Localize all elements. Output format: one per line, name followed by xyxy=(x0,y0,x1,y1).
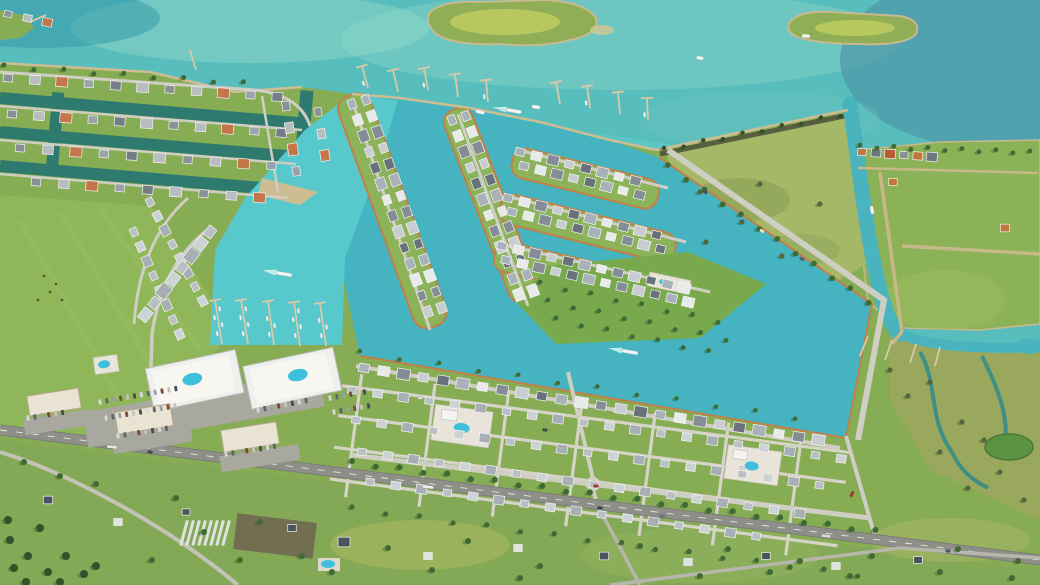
house xyxy=(660,459,669,467)
house xyxy=(738,470,747,478)
tree-icon xyxy=(716,320,721,325)
house xyxy=(418,372,429,382)
rural-pool xyxy=(321,560,335,568)
tree-icon xyxy=(181,75,186,80)
house xyxy=(506,438,515,446)
house xyxy=(221,124,234,135)
house xyxy=(288,525,297,532)
house xyxy=(23,14,33,23)
house xyxy=(320,149,331,161)
tree-icon xyxy=(4,516,12,524)
house xyxy=(752,532,761,540)
house xyxy=(60,112,73,123)
tree-icon xyxy=(673,327,678,332)
tree-icon xyxy=(397,464,403,470)
house xyxy=(647,517,659,527)
tree-icon xyxy=(604,326,609,331)
tree-icon xyxy=(237,557,243,563)
tree-icon xyxy=(674,396,678,400)
tree-icon xyxy=(546,298,551,303)
house xyxy=(110,81,121,90)
house xyxy=(792,431,805,442)
house xyxy=(397,392,409,402)
tree-icon xyxy=(793,251,799,257)
house xyxy=(595,401,606,411)
house xyxy=(646,276,657,286)
house xyxy=(396,368,411,381)
sand-shoal xyxy=(590,25,614,35)
tree-icon xyxy=(476,369,480,373)
tree-icon xyxy=(858,143,863,148)
tree-icon xyxy=(468,476,474,482)
tree-icon xyxy=(596,308,601,313)
tree-icon xyxy=(417,513,422,518)
tree-icon xyxy=(955,546,961,552)
island-meadow xyxy=(450,9,560,35)
tree-icon xyxy=(665,162,671,168)
tree-icon xyxy=(683,177,689,183)
house xyxy=(497,241,508,251)
house xyxy=(56,76,69,87)
tree-icon xyxy=(821,567,826,572)
house xyxy=(429,427,438,435)
clubhouse xyxy=(441,409,458,421)
house xyxy=(599,552,608,560)
house xyxy=(382,451,393,460)
tree-icon xyxy=(80,570,88,578)
car xyxy=(597,506,602,509)
house xyxy=(681,432,692,441)
tree-icon xyxy=(299,553,305,559)
house xyxy=(552,414,564,424)
house xyxy=(41,17,52,27)
tree-icon xyxy=(554,316,559,321)
house xyxy=(650,290,661,300)
house xyxy=(253,192,266,203)
tree-icon xyxy=(91,71,96,76)
house xyxy=(545,503,556,512)
tree-icon xyxy=(775,236,781,242)
house xyxy=(249,127,259,135)
tree-icon xyxy=(811,261,817,267)
house xyxy=(527,411,538,420)
house xyxy=(714,419,725,429)
house xyxy=(351,416,360,424)
tree-icon xyxy=(706,348,711,353)
house xyxy=(516,258,528,269)
tree-icon xyxy=(959,419,964,424)
house xyxy=(140,118,153,129)
house xyxy=(169,186,182,197)
tree-icon xyxy=(653,547,658,552)
house xyxy=(99,150,109,158)
livestock-dot xyxy=(49,291,52,294)
house xyxy=(450,400,461,409)
house xyxy=(142,185,153,194)
tree-icon xyxy=(875,146,880,151)
tree-icon xyxy=(539,483,545,489)
house xyxy=(169,121,179,129)
house xyxy=(752,424,767,437)
house xyxy=(454,430,465,439)
house xyxy=(629,425,641,435)
tree-icon xyxy=(437,361,441,365)
house xyxy=(693,415,708,428)
house xyxy=(562,256,574,267)
aerial-render xyxy=(0,0,1040,585)
house xyxy=(477,382,488,392)
house xyxy=(195,122,206,131)
house xyxy=(357,448,366,456)
house xyxy=(435,459,444,467)
house xyxy=(608,452,619,461)
tree-icon xyxy=(714,405,718,409)
tree-icon xyxy=(630,334,635,339)
tree-icon xyxy=(887,367,892,372)
pier xyxy=(647,98,648,120)
tree-icon xyxy=(706,507,712,513)
pier-t-head xyxy=(480,79,492,80)
house xyxy=(287,143,299,156)
house xyxy=(42,145,53,154)
tree-icon xyxy=(385,545,391,551)
tree-icon xyxy=(779,253,784,258)
house xyxy=(460,462,471,471)
house xyxy=(338,537,350,547)
tree-icon xyxy=(869,553,875,559)
tree-icon xyxy=(611,495,617,501)
tree-icon xyxy=(829,275,835,281)
house xyxy=(226,191,237,200)
house xyxy=(639,487,651,497)
house xyxy=(773,429,784,439)
tree-icon xyxy=(965,485,970,490)
tree-icon xyxy=(697,573,703,579)
tree-icon xyxy=(619,540,624,545)
house xyxy=(493,495,505,505)
house xyxy=(832,563,841,570)
tree-icon xyxy=(754,558,759,563)
house xyxy=(612,267,624,278)
house xyxy=(616,281,628,292)
tree-icon xyxy=(637,543,643,549)
house xyxy=(614,403,627,414)
tree-icon xyxy=(681,345,686,350)
tree-icon xyxy=(587,489,593,495)
house xyxy=(836,454,847,463)
house xyxy=(136,82,149,93)
car xyxy=(542,428,547,431)
house xyxy=(165,85,175,93)
house xyxy=(815,481,824,489)
tree-icon xyxy=(698,330,703,335)
tree-icon xyxy=(647,319,652,324)
house xyxy=(763,473,774,482)
house xyxy=(579,419,588,427)
car xyxy=(594,485,599,488)
tree-icon xyxy=(838,114,842,118)
house xyxy=(716,497,728,507)
tree-icon xyxy=(909,147,914,152)
house xyxy=(437,375,450,386)
house xyxy=(217,88,230,99)
house xyxy=(424,553,433,560)
tree-icon xyxy=(635,496,641,502)
house xyxy=(512,244,524,255)
house xyxy=(914,557,923,564)
tree-icon xyxy=(622,316,627,321)
house xyxy=(600,278,611,288)
house xyxy=(1000,224,1009,232)
house xyxy=(183,156,193,164)
tree-icon xyxy=(682,502,688,508)
house xyxy=(555,394,568,405)
tree-icon xyxy=(1027,149,1032,154)
tree-icon xyxy=(780,123,784,127)
tree-icon xyxy=(149,557,155,563)
tree-icon xyxy=(799,122,803,126)
house xyxy=(520,500,529,508)
tree-icon xyxy=(725,546,731,552)
tree-icon xyxy=(383,511,388,516)
house xyxy=(377,366,390,377)
tree-icon xyxy=(21,459,27,465)
house xyxy=(3,74,13,82)
tree-icon xyxy=(793,416,797,420)
house xyxy=(88,116,98,124)
house xyxy=(633,405,648,418)
house xyxy=(43,496,52,504)
tree-icon xyxy=(10,564,18,572)
house xyxy=(784,446,796,456)
house xyxy=(314,107,322,116)
tree-icon xyxy=(754,514,760,520)
house xyxy=(666,491,675,499)
house xyxy=(485,465,497,475)
house xyxy=(562,476,574,486)
tree-icon xyxy=(429,567,435,573)
tree-icon xyxy=(825,521,831,527)
tree-icon xyxy=(801,520,807,526)
tree-icon xyxy=(329,569,335,575)
aerial-scene xyxy=(0,0,1040,585)
house xyxy=(531,441,542,450)
house xyxy=(4,10,13,18)
tree-icon xyxy=(662,146,666,150)
house xyxy=(475,403,487,413)
car xyxy=(659,514,664,517)
livestock-dot xyxy=(61,299,64,302)
house xyxy=(86,181,99,192)
tree-icon xyxy=(373,464,379,470)
tree-icon xyxy=(721,137,725,141)
house xyxy=(556,444,568,454)
house xyxy=(633,455,645,465)
tree-icon xyxy=(927,379,932,384)
tree-icon xyxy=(872,527,878,533)
house xyxy=(455,377,470,390)
tree-icon xyxy=(92,562,100,570)
house xyxy=(622,514,633,523)
house xyxy=(604,422,615,431)
house xyxy=(15,144,25,152)
house xyxy=(272,92,283,101)
tree-icon xyxy=(358,349,362,353)
house xyxy=(684,559,693,566)
car xyxy=(945,549,950,552)
house xyxy=(153,152,166,163)
tree-icon xyxy=(797,558,803,564)
tree-icon xyxy=(703,239,708,244)
tree-icon xyxy=(686,549,691,554)
tree-icon xyxy=(1009,575,1015,581)
tree-icon xyxy=(658,501,664,507)
house xyxy=(724,527,736,537)
tree-icon xyxy=(760,129,764,133)
tree-icon xyxy=(518,529,523,534)
tree-icon xyxy=(579,324,584,329)
house xyxy=(583,449,592,457)
tree-icon xyxy=(614,298,619,303)
tree-icon xyxy=(994,147,999,152)
house xyxy=(811,434,826,447)
house xyxy=(514,545,523,552)
tree-icon xyxy=(848,285,854,291)
tree-icon xyxy=(36,524,44,532)
tree-icon xyxy=(257,519,263,525)
house xyxy=(744,502,753,510)
house xyxy=(33,111,44,120)
car xyxy=(739,466,744,469)
house xyxy=(31,178,41,186)
house xyxy=(376,419,387,428)
tree-icon xyxy=(720,202,726,208)
house xyxy=(210,157,221,166)
house xyxy=(199,190,209,198)
island-texture xyxy=(885,270,1005,330)
house xyxy=(390,481,401,490)
house xyxy=(317,128,326,139)
house xyxy=(284,122,294,134)
tree-icon xyxy=(588,290,593,295)
tree-icon xyxy=(757,181,762,186)
house xyxy=(468,492,479,501)
house xyxy=(58,179,69,188)
tree-icon xyxy=(738,211,744,217)
house xyxy=(899,151,908,159)
tree-icon xyxy=(740,131,744,135)
tree-icon xyxy=(777,514,783,520)
tree-icon xyxy=(516,372,520,376)
house xyxy=(70,147,83,158)
pier-t-head xyxy=(641,98,653,99)
house xyxy=(114,117,125,126)
tree-icon xyxy=(6,536,14,544)
tree-icon xyxy=(556,381,560,385)
tree-icon xyxy=(516,482,522,488)
tree-icon xyxy=(960,146,965,151)
tree-icon xyxy=(767,569,773,575)
tree-icon xyxy=(892,144,897,149)
car xyxy=(417,396,422,399)
tree-icon xyxy=(1015,558,1021,564)
tree-icon xyxy=(977,149,982,154)
house xyxy=(443,489,452,497)
tree-icon xyxy=(997,469,1002,474)
west-amenity xyxy=(93,354,119,374)
tree-icon xyxy=(420,470,426,476)
boat-hull xyxy=(802,34,810,38)
island-meadow xyxy=(815,20,895,36)
house xyxy=(811,451,820,459)
tree-icon xyxy=(93,481,99,487)
house xyxy=(769,505,780,514)
tree-icon xyxy=(855,573,860,578)
house xyxy=(546,253,557,263)
house xyxy=(889,179,898,186)
tree-icon xyxy=(24,552,32,560)
house xyxy=(710,465,722,475)
house xyxy=(502,408,511,416)
house xyxy=(515,387,530,400)
tree-icon xyxy=(173,495,179,501)
house xyxy=(794,508,806,518)
house xyxy=(347,386,356,394)
house xyxy=(245,91,255,99)
house xyxy=(858,148,867,156)
pier-t-head xyxy=(612,91,624,92)
docked-boat xyxy=(643,112,645,117)
house xyxy=(570,506,582,516)
house xyxy=(182,509,190,515)
tree-icon xyxy=(451,520,456,525)
tree-icon xyxy=(571,306,576,311)
house xyxy=(788,476,800,486)
house xyxy=(733,422,746,433)
house xyxy=(536,391,547,401)
tree-icon xyxy=(817,201,822,206)
livestock-dot xyxy=(43,275,46,278)
tree-icon xyxy=(724,338,729,343)
tree-icon xyxy=(937,569,943,575)
livestock-dot xyxy=(37,299,40,302)
tree-icon xyxy=(241,79,246,84)
house xyxy=(425,397,434,405)
tree-icon xyxy=(937,449,942,454)
house xyxy=(114,519,123,526)
tree-icon xyxy=(517,575,523,581)
house xyxy=(685,462,696,471)
house xyxy=(237,158,250,169)
house xyxy=(614,484,625,493)
tree-icon xyxy=(1011,150,1016,155)
house xyxy=(365,478,374,486)
tree-icon xyxy=(701,138,705,142)
house xyxy=(661,279,673,290)
tree-icon xyxy=(585,538,590,543)
tree-icon xyxy=(943,148,948,153)
tree-icon xyxy=(730,508,736,514)
house xyxy=(706,435,718,445)
tree-icon xyxy=(349,504,354,509)
tree-icon xyxy=(665,309,670,314)
house xyxy=(574,396,589,409)
tree-icon xyxy=(681,144,685,148)
house xyxy=(699,524,710,533)
tree-icon xyxy=(465,538,471,544)
tree-icon xyxy=(720,556,725,561)
grid-amenity-east xyxy=(724,445,782,486)
